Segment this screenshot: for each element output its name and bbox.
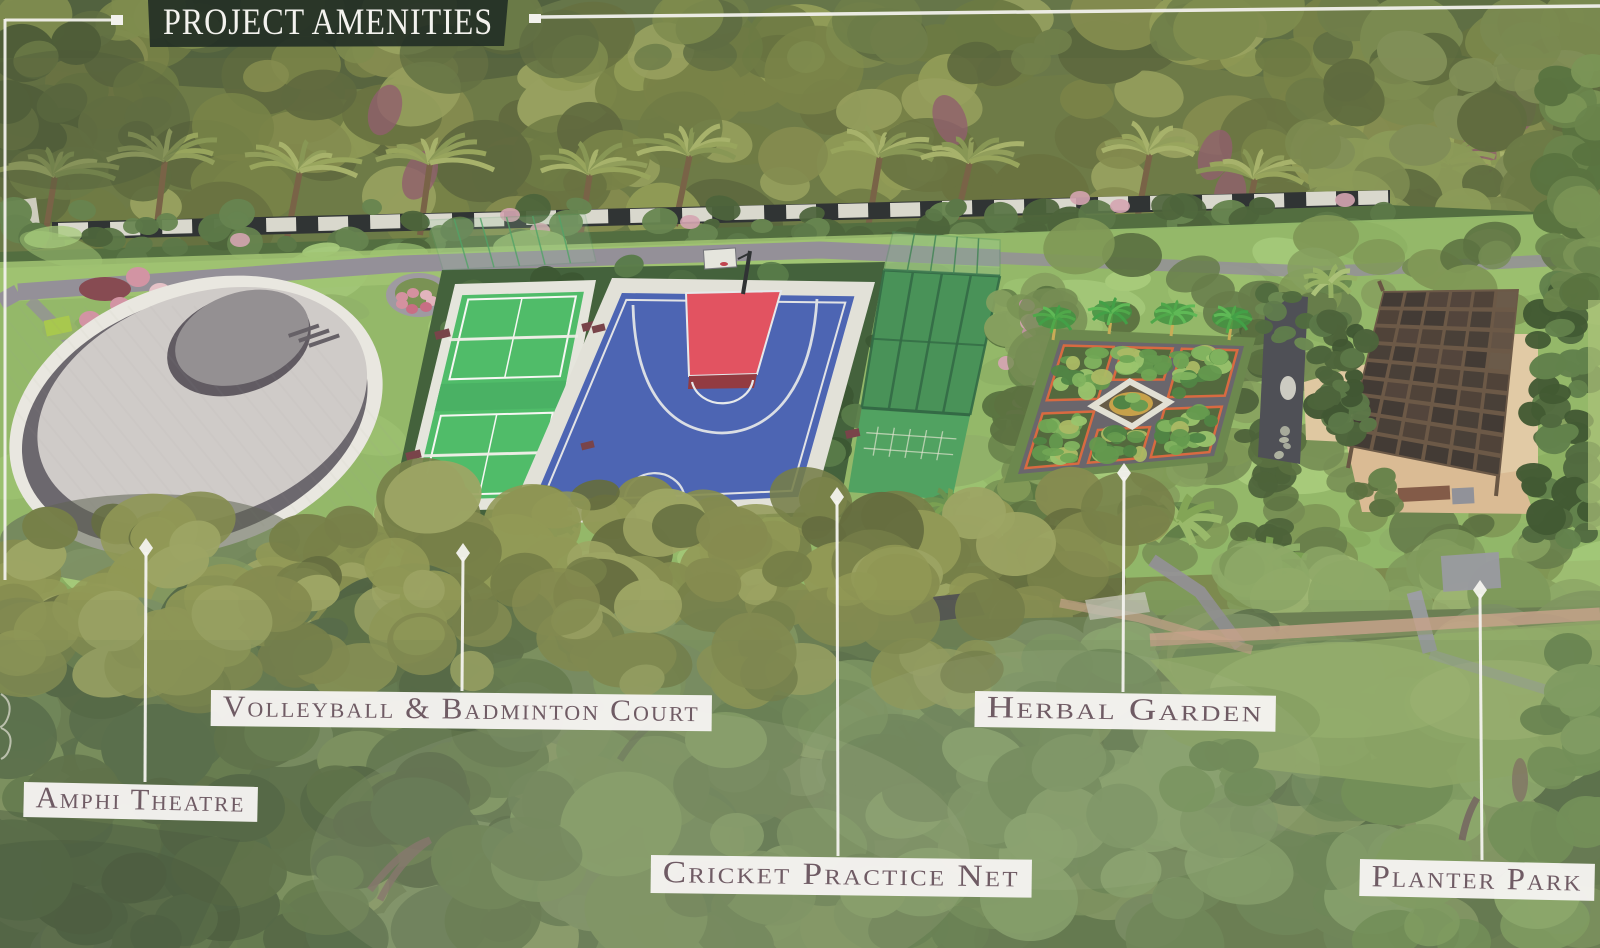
svg-text:PROJECT AMENITIES: PROJECT AMENITIES — [163, 2, 493, 43]
svg-text:Planter Park: Planter Park — [1371, 858, 1583, 897]
svg-text:Amphi Theatre: Amphi Theatre — [35, 781, 246, 818]
svg-text:Volleyball & Badminton Court: Volleyball & Badminton Court — [223, 690, 700, 728]
svg-text:Cricket Practice Net: Cricket Practice Net — [663, 854, 1020, 893]
svg-text:Herbal Garden: Herbal Garden — [986, 689, 1264, 728]
